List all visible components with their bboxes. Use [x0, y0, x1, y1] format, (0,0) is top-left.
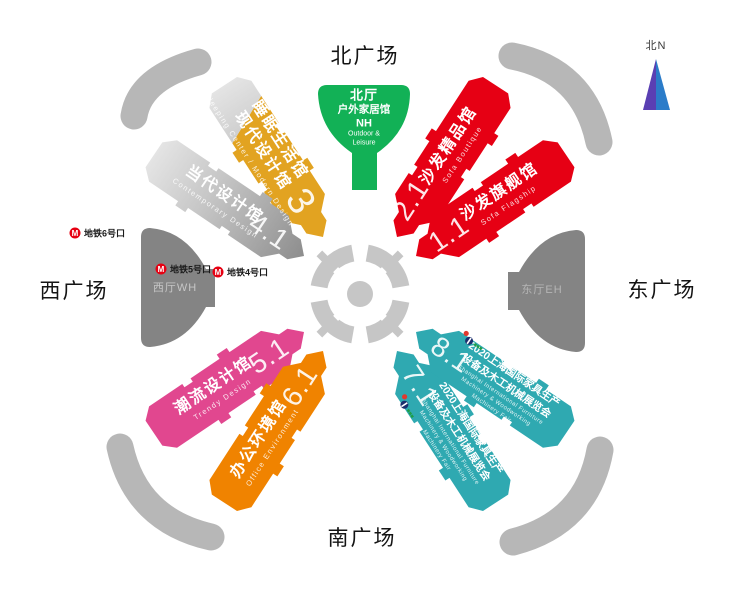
metro-exit-6-marker[interactable]: M — [70, 228, 81, 239]
north-entrance-hall[interactable] — [318, 85, 410, 190]
north-arrow-icon — [643, 59, 670, 110]
map-shapes: M M M — [0, 0, 749, 594]
metro-exit-5-marker[interactable]: M — [156, 264, 167, 275]
metro-icon-m: M — [158, 265, 165, 274]
venue-map: M M M 北广场 西广场 东广场 南广场 北N 北厅 户外家居馆 NH Out… — [0, 0, 749, 594]
metro-icon-m: M — [72, 229, 79, 238]
compass-right-half — [656, 59, 670, 110]
ramp-southwest — [120, 447, 211, 537]
west-entrance-hall[interactable] — [141, 228, 215, 347]
central-ring — [317, 251, 404, 338]
metro-icon-m: M — [215, 268, 222, 277]
metro-exit-4-marker[interactable]: M — [213, 267, 224, 278]
ramp-northeast — [512, 56, 599, 142]
ring-center-disk — [347, 281, 373, 307]
ramp-southeast — [513, 450, 600, 542]
ramp-northwest — [134, 62, 198, 116]
east-entrance-hall[interactable] — [508, 230, 585, 352]
compass-left-half — [643, 59, 656, 110]
